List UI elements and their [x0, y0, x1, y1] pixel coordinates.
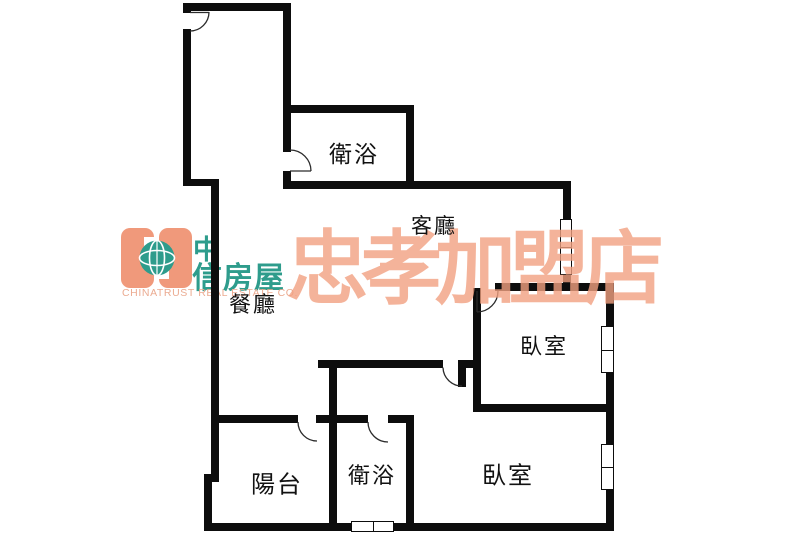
door-arc-entry	[190, 12, 209, 31]
wall-balcony-top	[211, 415, 298, 423]
wall-left-upper	[183, 29, 191, 186]
room-label-bath-lower: 衛浴	[348, 458, 396, 490]
window-bedroom-upper	[601, 326, 614, 373]
room-label-bath-top: 衛浴	[329, 135, 379, 169]
room-label-bedroom-upper: 臥室	[520, 329, 568, 361]
wall-entry-stub	[183, 3, 191, 13]
window-bedroom-lower	[601, 444, 614, 490]
window-bath-lower	[351, 521, 394, 532]
room-label-living: 客廳	[411, 210, 457, 240]
wall-center-divider	[329, 360, 337, 531]
wall-top	[183, 3, 290, 11]
room-label-dining: 餐廳	[229, 287, 277, 319]
wall-corridor-upper	[283, 3, 291, 152]
door-arc-bath-top	[290, 150, 311, 171]
wall-left-mid	[211, 179, 219, 481]
watermark-text: 忠孝加盟店	[287, 224, 657, 316]
door-arc-balcony	[298, 422, 317, 441]
wall-bath2-right	[406, 415, 414, 531]
room-label-balcony: 陽台	[251, 465, 303, 500]
wall-door-post	[458, 360, 466, 387]
wall-bath2-top-left	[333, 415, 368, 423]
room-label-bedroom-lower: 臥室	[482, 456, 534, 491]
wall-living-top	[283, 181, 571, 189]
floor-plan-canvas: 中 信房屋 CHINATRUST REAL ESTATE CO. 忠	[0, 0, 800, 533]
chinatrust-logo-icon	[121, 228, 192, 288]
door-arc-bath-lower	[368, 422, 388, 442]
wall-bedrooms-divider	[473, 404, 614, 412]
wall-bath-top	[283, 105, 414, 113]
wall-bath-right	[406, 105, 414, 189]
